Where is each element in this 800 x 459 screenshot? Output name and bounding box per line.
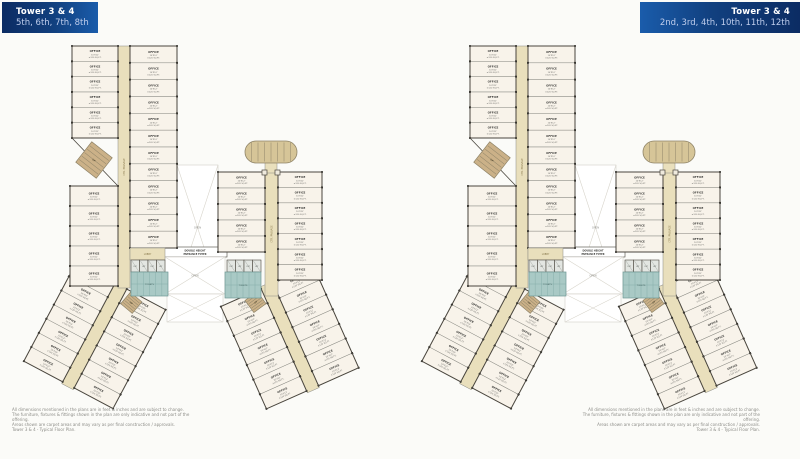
- office-unit: OFFICE10'X12'±120 SQ.FT.: [615, 219, 664, 237]
- office-unit: OFFICE10'X12'±120 SQ.FT.: [129, 197, 178, 216]
- office-unit: OFFICE10'X12'±120 SQ.FT.: [527, 96, 576, 115]
- svg-text:±120 SQ.FT.: ±120 SQ.FT.: [633, 199, 646, 201]
- svg-text:±120 SQ.FT.: ±120 SQ.FT.: [692, 275, 705, 277]
- ramp-oval: [643, 141, 695, 175]
- office-unit: OFFICE10'X12'±120 SQ.FT.: [527, 230, 576, 249]
- svg-text:±120 SQ.FT.: ±120 SQ.FT.: [147, 192, 160, 194]
- svg-text:±120 SQ.FT.: ±120 SQ.FT.: [89, 88, 102, 90]
- svg-text:±120 SQ.FT.: ±120 SQ.FT.: [486, 219, 499, 221]
- svg-text:OFFICE: OFFICE: [236, 239, 247, 243]
- office-unit: OFFICE10'X12'±120 SQ.FT.: [277, 233, 323, 250]
- office-unit: OFFICE10'X12'±120 SQ.FT.: [675, 217, 721, 234]
- svg-text:OFFICE: OFFICE: [546, 201, 557, 205]
- svg-text:OFFICE: OFFICE: [546, 151, 557, 155]
- svg-text:±120 SQ.FT.: ±120 SQ.FT.: [235, 183, 248, 185]
- office-unit: OFFICE10'X12'±120 SQ.FT.: [277, 187, 323, 204]
- lift-bank: LIFTLIFTLIFTLIFT: [131, 260, 165, 272]
- svg-text:±120 SQ.FT.: ±120 SQ.FT.: [487, 134, 500, 136]
- svg-text:CTR. PASSAGE: CTR. PASSAGE: [270, 225, 273, 243]
- office-unit: OFFICE10'X12'±120 SQ.FT.: [469, 106, 517, 123]
- svg-text:±120 SQ.FT.: ±120 SQ.FT.: [89, 57, 102, 59]
- svg-text:OFFICE: OFFICE: [546, 50, 557, 54]
- office-unit: OFFICE10'X12'±120 SQ.FT.: [615, 187, 664, 205]
- svg-text:OFFICE: OFFICE: [148, 184, 159, 188]
- svg-text:±120 SQ.FT.: ±120 SQ.FT.: [545, 74, 558, 76]
- svg-text:OFFICE: OFFICE: [546, 218, 557, 222]
- office-unit: OFFICE10'X12'±120 SQ.FT.: [129, 79, 178, 98]
- svg-text:TOILETS: TOILETS: [145, 284, 154, 286]
- svg-text:±120 SQ.FT.: ±120 SQ.FT.: [545, 108, 558, 110]
- office-unit: OFFICE10'X12'±120 SQ.FT.: [467, 185, 517, 207]
- svg-text:±120 SQ.FT.: ±120 SQ.FT.: [545, 58, 558, 60]
- svg-text:±120 SQ.FT.: ±120 SQ.FT.: [487, 88, 500, 90]
- svg-text:±120 SQ.FT.: ±120 SQ.FT.: [294, 198, 307, 200]
- footer-band: [0, 437, 800, 459]
- office-unit: OFFICE10'X12'±120 SQ.FT.: [217, 219, 266, 237]
- floor-plan-drawing: OPENDOUBLE HEIGHTENTRANCE FOYEROPENOFFIC…: [15, 40, 365, 410]
- lift-cell: LIFT: [148, 260, 157, 272]
- svg-text:OPEN: OPEN: [592, 226, 599, 230]
- svg-text:OFFICE: OFFICE: [89, 191, 100, 195]
- disclaimer-line: Tower 3 & 4 - Typical Floor Plan.: [12, 427, 197, 432]
- office-unit-column: OFFICE10'X12'±120 SQ.FT.OFFICE10'X12'±12…: [469, 45, 517, 139]
- office-unit: OFFICE10'X12'±120 SQ.FT.: [527, 62, 576, 81]
- office-unit: OFFICE10'X12'±120 SQ.FT.: [469, 76, 517, 93]
- svg-text:±120 SQ.FT.: ±120 SQ.FT.: [487, 57, 500, 59]
- ramp-oval: [245, 141, 297, 175]
- svg-text:±120 SQ.FT.: ±120 SQ.FT.: [88, 219, 101, 221]
- lift-cell: LIFT: [529, 260, 538, 272]
- office-unit: OFFICE10'X12'±120 SQ.FT.: [277, 171, 323, 188]
- svg-text:±120 SQ.FT.: ±120 SQ.FT.: [147, 108, 160, 110]
- svg-text:OFFICE: OFFICE: [487, 271, 498, 275]
- svg-text:CTR. PASSAGE: CTR. PASSAGE: [668, 225, 671, 243]
- lift-cell: LIFT: [236, 260, 245, 272]
- svg-text:CTR. PASSAGE: CTR. PASSAGE: [123, 158, 126, 176]
- svg-text:±120 SQ.FT.: ±120 SQ.FT.: [88, 279, 101, 281]
- office-unit: OFFICE10'X12'±120 SQ.FT.: [71, 122, 119, 139]
- office-unit: OFFICE10'X12'±120 SQ.FT.: [615, 171, 664, 189]
- svg-text:±120 SQ.FT.: ±120 SQ.FT.: [486, 279, 499, 281]
- office-unit: OFFICE10'X12'±120 SQ.FT.: [615, 235, 664, 253]
- svg-text:±120 SQ.FT.: ±120 SQ.FT.: [147, 209, 160, 211]
- svg-text:OFFICE: OFFICE: [693, 237, 704, 241]
- svg-text:±120 SQ.FT.: ±120 SQ.FT.: [545, 91, 558, 93]
- toilet-block: TOILETS: [225, 272, 261, 298]
- svg-text:±120 SQ.FT.: ±120 SQ.FT.: [692, 214, 705, 216]
- svg-text:OFFICE: OFFICE: [295, 268, 306, 272]
- office-unit: OFFICE10'X12'±120 SQ.FT.: [71, 60, 119, 77]
- svg-text:±120 SQ.FT.: ±120 SQ.FT.: [147, 175, 160, 177]
- disclaimer-right: All dimensions mentioned in the plans ar…: [575, 407, 760, 432]
- office-unit: OFFICE10'X12'±120 SQ.FT.: [675, 233, 721, 250]
- office-unit: OFFICE10'X12'±120 SQ.FT.: [129, 180, 178, 199]
- svg-text:OFFICE: OFFICE: [90, 64, 101, 68]
- office-unit: OFFICE10'X12'±120 SQ.FT.: [129, 213, 178, 232]
- office-unit: OFFICE10'X12'±120 SQ.FT.: [277, 248, 323, 265]
- svg-text:±120 SQ.FT.: ±120 SQ.FT.: [235, 215, 248, 217]
- office-unit: OFFICE10'X12'±120 SQ.FT.: [129, 129, 178, 148]
- corridor: CTR. PASSAGE: [663, 172, 676, 296]
- office-unit: OFFICE10'X12'±120 SQ.FT.: [129, 62, 178, 81]
- office-unit: OFFICE10'X12'±120 SQ.FT.: [71, 106, 119, 123]
- svg-text:OFFICE: OFFICE: [295, 206, 306, 210]
- svg-text:OFFICE: OFFICE: [546, 168, 557, 172]
- svg-text:±120 SQ.FT.: ±120 SQ.FT.: [545, 159, 558, 161]
- svg-text:±120 SQ.FT.: ±120 SQ.FT.: [545, 175, 558, 177]
- office-unit: OFFICE10'X12'±120 SQ.FT.: [217, 235, 266, 253]
- disclaimer-line: Tower 3 & 4 - Typical Floor Plan.: [575, 427, 760, 432]
- lift-bank: LIFTLIFTLIFTLIFT: [625, 260, 659, 272]
- svg-text:OFFICE: OFFICE: [546, 100, 557, 104]
- svg-text:±120 SQ.FT.: ±120 SQ.FT.: [692, 260, 705, 262]
- office-unit-column: OFFICE10'X12'±120 SQ.FT.OFFICE10'X12'±12…: [217, 171, 266, 253]
- svg-text:OFFICE: OFFICE: [89, 231, 100, 235]
- office-unit: OFFICE10'X12'±120 SQ.FT.: [129, 45, 178, 64]
- svg-text:OFFICE: OFFICE: [236, 175, 247, 179]
- tower-floors: 2nd, 3rd, 4th, 10th, 11th, 12th: [640, 18, 790, 28]
- svg-text:OFFICE: OFFICE: [487, 191, 498, 195]
- svg-text:OFFICE: OFFICE: [634, 239, 645, 243]
- lift-cell: LIFT: [625, 260, 634, 272]
- svg-text:OFFICE: OFFICE: [236, 191, 247, 195]
- svg-text:OFFICE: OFFICE: [546, 184, 557, 188]
- svg-text:OFFICE: OFFICE: [295, 221, 306, 225]
- floor-plan-right: OPENDOUBLE HEIGHTENTRANCE FOYEROPENOFFIC…: [413, 40, 763, 410]
- svg-text:±120 SQ.FT.: ±120 SQ.FT.: [147, 142, 160, 144]
- office-unit: OFFICE10'X12'±120 SQ.FT.: [527, 45, 576, 64]
- svg-text:±120 SQ.FT.: ±120 SQ.FT.: [487, 103, 500, 105]
- corridor: CTR. PASSAGE: [118, 46, 130, 288]
- svg-text:OFFICE: OFFICE: [89, 211, 100, 215]
- svg-text:±120 SQ.FT.: ±120 SQ.FT.: [486, 239, 499, 241]
- toilet-block: TOILETS: [623, 272, 659, 298]
- tower-title: Tower 3 & 4: [16, 7, 98, 18]
- svg-text:ENTRANCE FOYER: ENTRANCE FOYER: [183, 253, 206, 256]
- lift-cell: LIFT: [651, 260, 660, 272]
- lift-cell: LIFT: [253, 260, 262, 272]
- svg-text:±120 SQ.FT.: ±120 SQ.FT.: [692, 229, 705, 231]
- svg-text:OFFICE: OFFICE: [488, 126, 499, 130]
- svg-text:OFFICE: OFFICE: [693, 221, 704, 225]
- svg-text:OFFICE: OFFICE: [546, 235, 557, 239]
- svg-text:±120 SQ.FT.: ±120 SQ.FT.: [294, 275, 307, 277]
- svg-text:OFFICE: OFFICE: [295, 237, 306, 241]
- office-unit: OFFICE10'X12'±120 SQ.FT.: [527, 213, 576, 232]
- office-unit: OFFICE10'X12'±120 SQ.FT.: [71, 91, 119, 108]
- svg-text:OFFICE: OFFICE: [487, 251, 498, 255]
- svg-text:±120 SQ.FT.: ±120 SQ.FT.: [147, 226, 160, 228]
- office-unit-column: OFFICE10'X12'±120 SQ.FT.OFFICE10'X12'±12…: [527, 45, 576, 249]
- lift-bank: LIFTLIFTLIFTLIFT: [227, 260, 261, 272]
- svg-text:OFFICE: OFFICE: [148, 201, 159, 205]
- svg-text:±120 SQ.FT.: ±120 SQ.FT.: [692, 198, 705, 200]
- office-unit: OFFICE10'X12'±120 SQ.FT.: [217, 203, 266, 221]
- toilet-block: TOILETS: [529, 272, 566, 296]
- office-unit: OFFICE10'X12'±120 SQ.FT.: [69, 265, 119, 287]
- office-unit: OFFICE10'X12'±120 SQ.FT.: [129, 96, 178, 115]
- svg-text:OFFICE: OFFICE: [634, 223, 645, 227]
- lift-cell: LIFT: [538, 260, 547, 272]
- svg-text:OFFICE: OFFICE: [295, 191, 306, 195]
- open-area: [565, 294, 621, 322]
- svg-text:±120 SQ.FT.: ±120 SQ.FT.: [294, 245, 307, 247]
- svg-text:OFFICE: OFFICE: [693, 252, 704, 256]
- svg-text:OFFICE: OFFICE: [148, 117, 159, 121]
- svg-text:OFFICE: OFFICE: [148, 218, 159, 222]
- disclaimer-left: All dimensions mentioned in the plans ar…: [12, 407, 197, 432]
- lift-cell: LIFT: [642, 260, 651, 272]
- tower-title: Tower 3 & 4: [640, 7, 790, 18]
- disclaimer-line: The furniture, fixtures & fittings shown…: [575, 412, 760, 422]
- toilet-block: TOILETS: [131, 272, 168, 296]
- office-unit: OFFICE10'X12'±120 SQ.FT.: [217, 171, 266, 189]
- svg-text:OFFICE: OFFICE: [90, 49, 101, 53]
- office-unit: OFFICE10'X12'±120 SQ.FT.: [469, 60, 517, 77]
- svg-text:OFFICE: OFFICE: [634, 175, 645, 179]
- office-unit: OFFICE10'X12'±120 SQ.FT.: [277, 202, 323, 219]
- svg-text:OFFICE: OFFICE: [693, 206, 704, 210]
- svg-text:OFFICE: OFFICE: [148, 235, 159, 239]
- office-unit: OFFICE10'X12'±120 SQ.FT.: [675, 171, 721, 188]
- svg-text:OFFICE: OFFICE: [148, 67, 159, 71]
- svg-text:OPEN: OPEN: [589, 274, 596, 278]
- office-unit: OFFICE10'X12'±120 SQ.FT.: [129, 163, 178, 182]
- svg-text:OFFICE: OFFICE: [295, 252, 306, 256]
- svg-text:±120 SQ.FT.: ±120 SQ.FT.: [294, 229, 307, 231]
- lift-cell: LIFT: [131, 260, 140, 272]
- svg-text:OFFICE: OFFICE: [487, 231, 498, 235]
- svg-text:OFFICE: OFFICE: [90, 110, 101, 114]
- office-unit: OFFICE10'X12'±120 SQ.FT.: [527, 79, 576, 98]
- svg-text:OFFICE: OFFICE: [148, 100, 159, 104]
- svg-text:OFFICE: OFFICE: [488, 49, 499, 53]
- open-area: OPEN: [563, 257, 623, 294]
- office-unit-column: OFFICE10'X12'±120 SQ.FT.OFFICE10'X12'±12…: [467, 185, 517, 287]
- svg-text:OFFICE: OFFICE: [236, 223, 247, 227]
- svg-text:OFFICE: OFFICE: [488, 80, 499, 84]
- office-unit: OFFICE10'X12'±120 SQ.FT.: [277, 217, 323, 234]
- office-unit: OFFICE10'X12'±120 SQ.FT.: [217, 187, 266, 205]
- office-unit: OFFICE10'X12'±120 SQ.FT.: [675, 264, 721, 281]
- office-unit: OFFICE10'X12'±120 SQ.FT.: [467, 225, 517, 247]
- office-unit: OFFICE10'X12'±120 SQ.FT.: [675, 202, 721, 219]
- office-unit: OFFICE10'X12'±120 SQ.FT.: [469, 45, 517, 62]
- lift-cell: LIFT: [157, 260, 166, 272]
- open-area: [167, 294, 223, 322]
- svg-text:TOILETS: TOILETS: [239, 285, 248, 287]
- svg-text:±120 SQ.FT.: ±120 SQ.FT.: [545, 243, 558, 245]
- office-unit: OFFICE10'X12'±120 SQ.FT.: [69, 205, 119, 227]
- office-unit: OFFICE10'X12'±120 SQ.FT.: [71, 76, 119, 93]
- office-unit: OFFICE10'X12'±120 SQ.FT.: [69, 225, 119, 247]
- lobby: LOBBY: [130, 248, 165, 260]
- office-unit: OFFICE10'X12'±120 SQ.FT.: [129, 146, 178, 165]
- office-unit: OFFICE10'X12'±120 SQ.FT.: [527, 146, 576, 165]
- svg-text:OFFICE: OFFICE: [634, 207, 645, 211]
- svg-text:±120 SQ.FT.: ±120 SQ.FT.: [235, 231, 248, 233]
- corridor: CTR. PASSAGE: [265, 172, 278, 296]
- svg-text:±120 SQ.FT.: ±120 SQ.FT.: [545, 142, 558, 144]
- svg-text:±120 SQ.FT.: ±120 SQ.FT.: [89, 134, 102, 136]
- svg-text:OFFICE: OFFICE: [546, 134, 557, 138]
- svg-text:±120 SQ.FT.: ±120 SQ.FT.: [89, 103, 102, 105]
- lift-cell: LIFT: [634, 260, 643, 272]
- office-unit: OFFICE10'X12'±120 SQ.FT.: [467, 205, 517, 227]
- lobby: LOBBY: [528, 248, 563, 260]
- svg-text:OFFICE: OFFICE: [148, 50, 159, 54]
- office-unit: OFFICE10'X12'±120 SQ.FT.: [467, 265, 517, 287]
- svg-text:LOBBY: LOBBY: [144, 253, 152, 256]
- office-unit: OFFICE10'X12'±120 SQ.FT.: [675, 187, 721, 204]
- svg-text:OFFICE: OFFICE: [295, 175, 306, 179]
- office-unit: OFFICE10'X12'±120 SQ.FT.: [71, 45, 119, 62]
- floor-plan-left: OPENDOUBLE HEIGHTENTRANCE FOYEROPENOFFIC…: [15, 40, 365, 410]
- svg-text:±120 SQ.FT.: ±120 SQ.FT.: [545, 125, 558, 127]
- svg-text:±120 SQ.FT.: ±120 SQ.FT.: [88, 199, 101, 201]
- office-unit-column: OFFICE10'X12'±120 SQ.FT.OFFICE10'X12'±12…: [69, 185, 119, 287]
- svg-text:±120 SQ.FT.: ±120 SQ.FT.: [88, 259, 101, 261]
- svg-text:±120 SQ.FT.: ±120 SQ.FT.: [147, 159, 160, 161]
- svg-text:±120 SQ.FT.: ±120 SQ.FT.: [235, 247, 248, 249]
- disclaimer-line: The furniture, fixtures & fittings shown…: [12, 412, 197, 422]
- svg-text:OFFICE: OFFICE: [89, 251, 100, 255]
- office-unit: OFFICE10'X12'±120 SQ.FT.: [129, 112, 178, 131]
- office-unit-column: OFFICE10'X12'±120 SQ.FT.OFFICE10'X12'±12…: [615, 171, 664, 253]
- svg-text:OFFICE: OFFICE: [693, 175, 704, 179]
- lift-cell: LIFT: [140, 260, 149, 272]
- svg-text:OFFICE: OFFICE: [148, 134, 159, 138]
- svg-text:LOBBY: LOBBY: [542, 253, 550, 256]
- tower-banner-left: Tower 3 & 4 5th, 6th, 7th, 8th: [2, 2, 98, 33]
- office-unit: OFFICE10'X12'±120 SQ.FT.: [527, 129, 576, 148]
- open-area: OPEN: [165, 257, 225, 294]
- svg-text:OFFICE: OFFICE: [90, 80, 101, 84]
- svg-text:OFFICE: OFFICE: [148, 83, 159, 87]
- svg-text:OFFICE: OFFICE: [89, 271, 100, 275]
- svg-text:OPEN: OPEN: [191, 274, 198, 278]
- svg-text:OFFICE: OFFICE: [148, 168, 159, 172]
- office-unit: OFFICE10'X12'±120 SQ.FT.: [69, 245, 119, 267]
- svg-text:TOILETS: TOILETS: [543, 284, 552, 286]
- svg-text:±120 SQ.FT.: ±120 SQ.FT.: [486, 259, 499, 261]
- svg-text:±120 SQ.FT.: ±120 SQ.FT.: [545, 209, 558, 211]
- svg-text:±120 SQ.FT.: ±120 SQ.FT.: [88, 239, 101, 241]
- svg-text:CTR. PASSAGE: CTR. PASSAGE: [521, 158, 524, 176]
- floor-plan-brochure-page: Tower 3 & 4 5th, 6th, 7th, 8th Tower 3 &…: [0, 0, 800, 459]
- svg-text:±120 SQ.FT.: ±120 SQ.FT.: [89, 72, 102, 74]
- svg-text:ENTRANCE FOYER: ENTRANCE FOYER: [581, 253, 604, 256]
- svg-text:±120 SQ.FT.: ±120 SQ.FT.: [147, 243, 160, 245]
- office-unit-column: OFFICE10'X12'±120 SQ.FT.OFFICE10'X12'±12…: [675, 171, 721, 281]
- svg-text:±120 SQ.FT.: ±120 SQ.FT.: [147, 74, 160, 76]
- svg-text:OFFICE: OFFICE: [487, 211, 498, 215]
- floor-plan-drawing: OPENDOUBLE HEIGHTENTRANCE FOYEROPENOFFIC…: [413, 40, 763, 410]
- svg-text:±120 SQ.FT.: ±120 SQ.FT.: [692, 245, 705, 247]
- svg-text:±120 SQ.FT.: ±120 SQ.FT.: [235, 199, 248, 201]
- office-unit: OFFICE10'X12'±120 SQ.FT.: [527, 180, 576, 199]
- lift-cell: LIFT: [244, 260, 253, 272]
- svg-text:±120 SQ.FT.: ±120 SQ.FT.: [487, 72, 500, 74]
- svg-text:±120 SQ.FT.: ±120 SQ.FT.: [147, 91, 160, 93]
- svg-text:DOUBLE HEIGHT: DOUBLE HEIGHT: [582, 250, 603, 253]
- tower-banner-right: Tower 3 & 4 2nd, 3rd, 4th, 10th, 11th, 1…: [640, 2, 800, 33]
- office-unit: OFFICE10'X12'±120 SQ.FT.: [675, 248, 721, 265]
- svg-text:±120 SQ.FT.: ±120 SQ.FT.: [633, 247, 646, 249]
- office-unit: OFFICE10'X12'±120 SQ.FT.: [527, 163, 576, 182]
- svg-text:TOILETS: TOILETS: [637, 285, 646, 287]
- svg-text:OFFICE: OFFICE: [90, 95, 101, 99]
- lift-cell: LIFT: [546, 260, 555, 272]
- office-unit: OFFICE10'X12'±120 SQ.FT.: [469, 91, 517, 108]
- svg-text:±120 SQ.FT.: ±120 SQ.FT.: [633, 215, 646, 217]
- svg-text:OFFICE: OFFICE: [693, 268, 704, 272]
- office-unit: OFFICE10'X12'±120 SQ.FT.: [129, 230, 178, 249]
- lift-cell: LIFT: [227, 260, 236, 272]
- svg-text:±120 SQ.FT.: ±120 SQ.FT.: [89, 118, 102, 120]
- svg-text:±120 SQ.FT.: ±120 SQ.FT.: [294, 183, 307, 185]
- svg-text:OFFICE: OFFICE: [634, 191, 645, 195]
- svg-text:OFFICE: OFFICE: [546, 83, 557, 87]
- svg-text:DOUBLE HEIGHT: DOUBLE HEIGHT: [184, 250, 205, 253]
- svg-text:±120 SQ.FT.: ±120 SQ.FT.: [487, 118, 500, 120]
- tower-floors: 5th, 6th, 7th, 8th: [16, 18, 98, 28]
- office-unit: OFFICE10'X12'±120 SQ.FT.: [467, 245, 517, 267]
- svg-text:±120 SQ.FT.: ±120 SQ.FT.: [692, 183, 705, 185]
- svg-text:OFFICE: OFFICE: [148, 151, 159, 155]
- office-unit: OFFICE10'X12'±120 SQ.FT.: [69, 185, 119, 207]
- lift-cell: LIFT: [555, 260, 564, 272]
- svg-text:±120 SQ.FT.: ±120 SQ.FT.: [294, 214, 307, 216]
- svg-text:±120 SQ.FT.: ±120 SQ.FT.: [545, 226, 558, 228]
- office-unit: OFFICE10'X12'±120 SQ.FT.: [615, 203, 664, 221]
- svg-text:OFFICE: OFFICE: [693, 191, 704, 195]
- svg-text:±120 SQ.FT.: ±120 SQ.FT.: [147, 58, 160, 60]
- svg-text:±120 SQ.FT.: ±120 SQ.FT.: [545, 192, 558, 194]
- office-unit: OFFICE10'X12'±120 SQ.FT.: [527, 197, 576, 216]
- svg-text:OFFICE: OFFICE: [236, 207, 247, 211]
- svg-text:OFFICE: OFFICE: [546, 67, 557, 71]
- svg-text:OFFICE: OFFICE: [90, 126, 101, 130]
- svg-text:±120 SQ.FT.: ±120 SQ.FT.: [486, 199, 499, 201]
- office-unit-column: OFFICE10'X12'±120 SQ.FT.OFFICE10'X12'±12…: [277, 171, 323, 281]
- corridor: CTR. PASSAGE: [516, 46, 528, 288]
- svg-text:OFFICE: OFFICE: [488, 64, 499, 68]
- svg-text:OFFICE: OFFICE: [546, 117, 557, 121]
- svg-text:OPEN: OPEN: [194, 226, 201, 230]
- svg-text:OFFICE: OFFICE: [488, 110, 499, 114]
- office-unit: OFFICE10'X12'±120 SQ.FT.: [527, 112, 576, 131]
- svg-text:±120 SQ.FT.: ±120 SQ.FT.: [294, 260, 307, 262]
- office-unit-column: OFFICE10'X12'±120 SQ.FT.OFFICE10'X12'±12…: [71, 45, 119, 139]
- office-unit: OFFICE10'X12'±120 SQ.FT.: [277, 264, 323, 281]
- svg-text:OFFICE: OFFICE: [488, 95, 499, 99]
- svg-text:±120 SQ.FT.: ±120 SQ.FT.: [633, 183, 646, 185]
- svg-text:±120 SQ.FT.: ±120 SQ.FT.: [633, 231, 646, 233]
- office-unit: OFFICE10'X12'±120 SQ.FT.: [469, 122, 517, 139]
- svg-text:±120 SQ.FT.: ±120 SQ.FT.: [147, 125, 160, 127]
- office-unit-column: OFFICE10'X12'±120 SQ.FT.OFFICE10'X12'±12…: [129, 45, 178, 249]
- lift-bank: LIFTLIFTLIFTLIFT: [529, 260, 563, 272]
